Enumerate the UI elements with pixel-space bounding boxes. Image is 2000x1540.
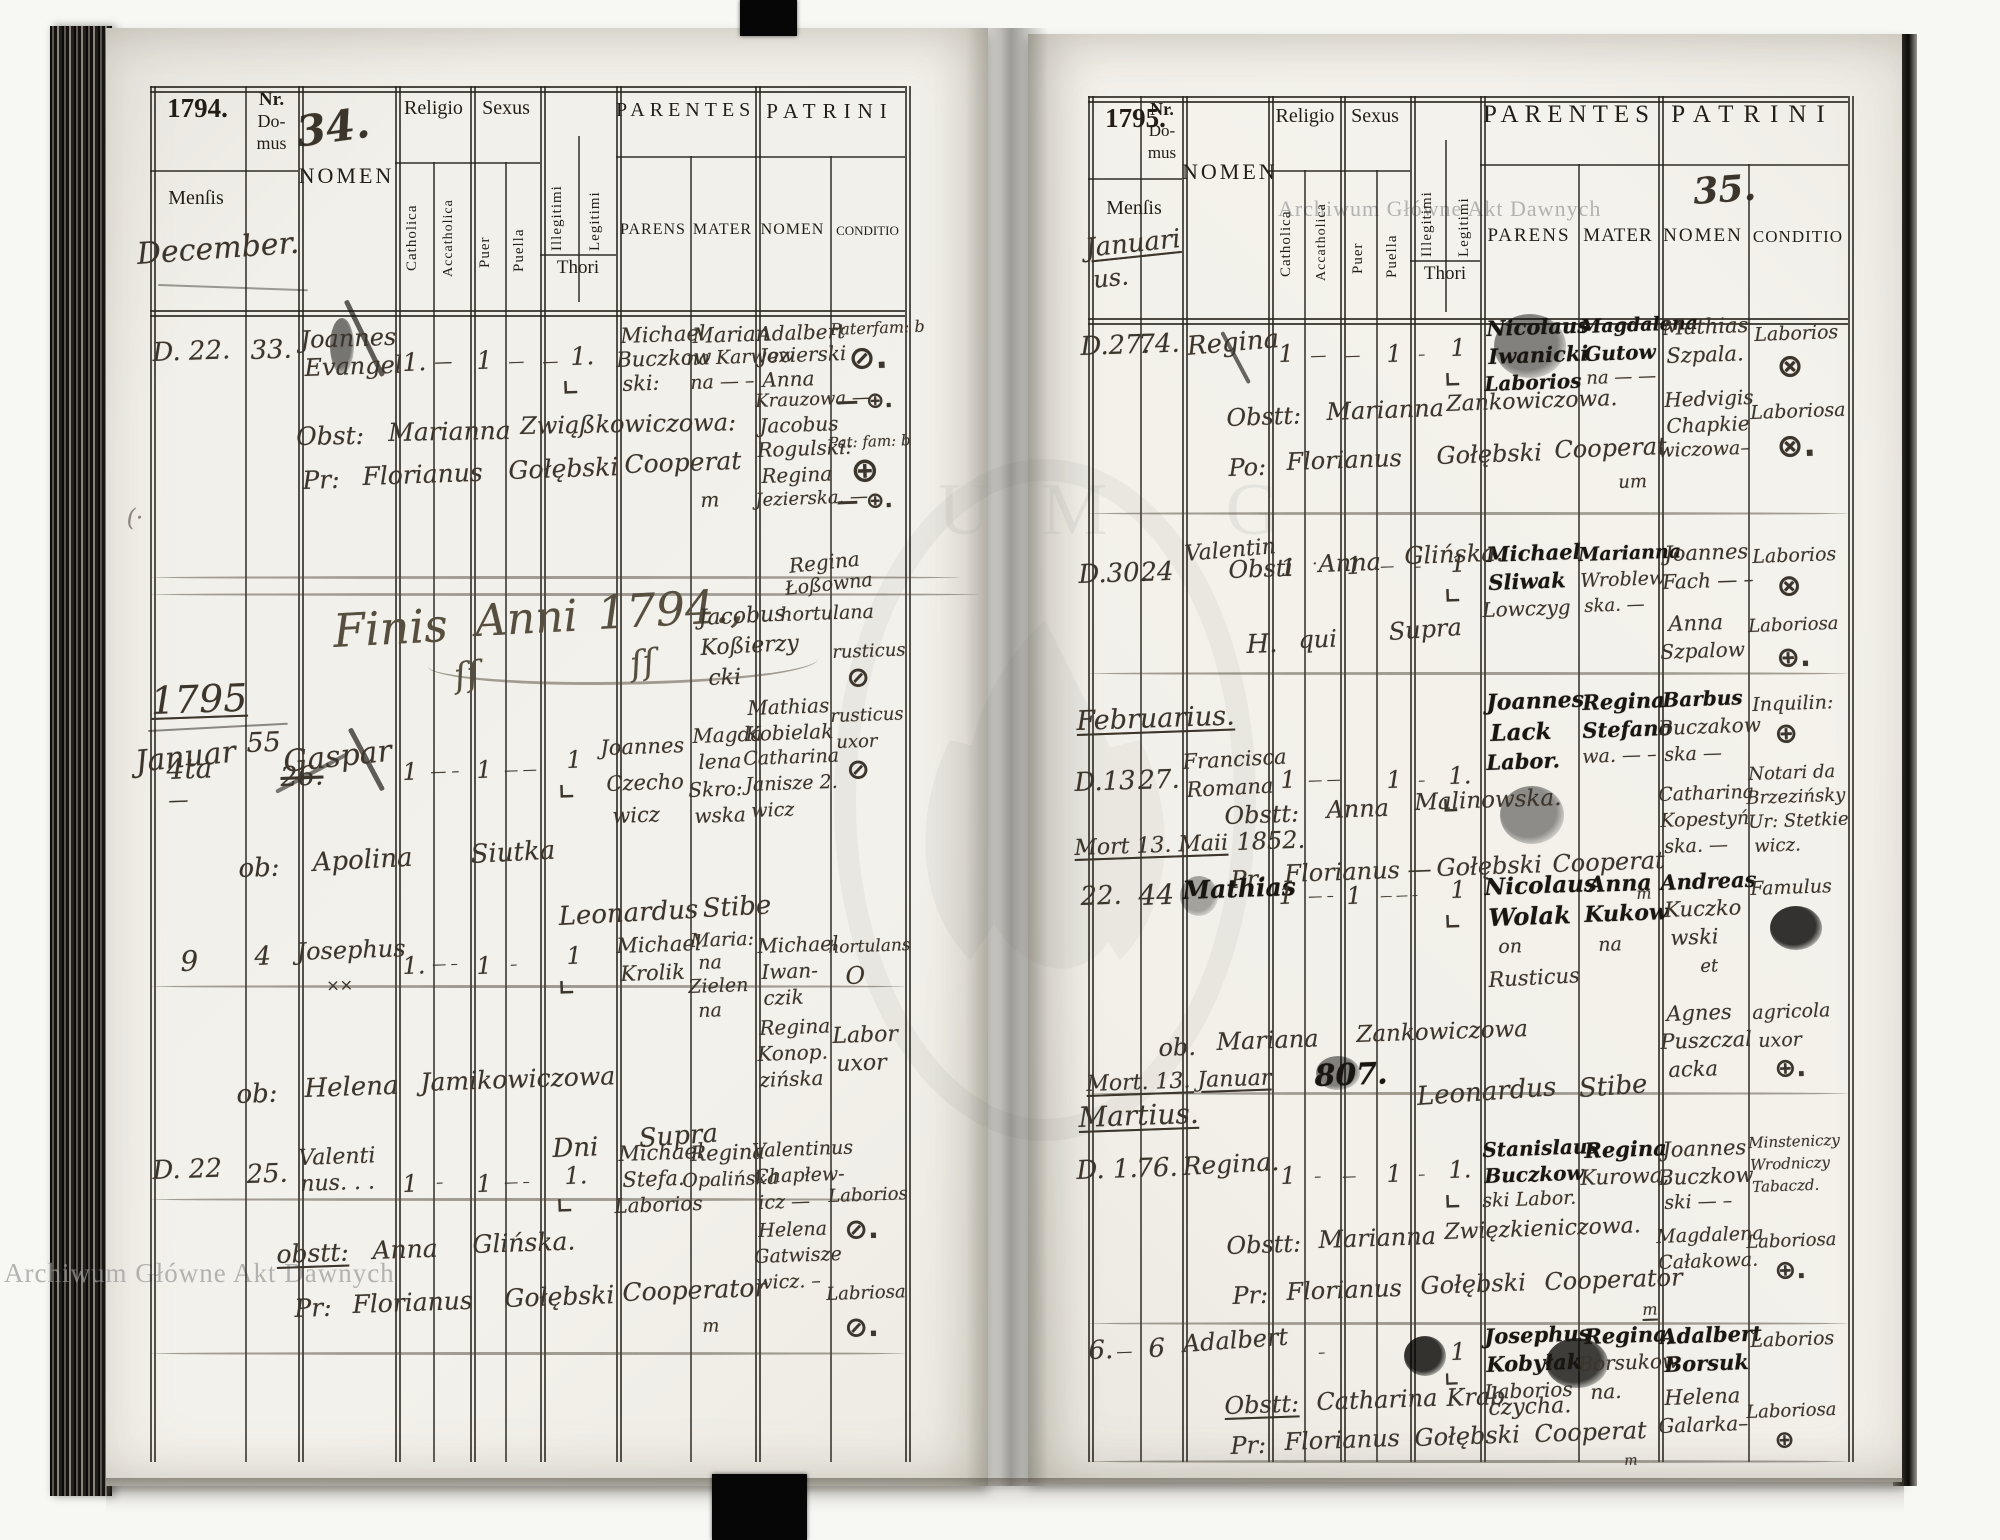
parentes-label-left: PARENTES bbox=[616, 100, 755, 121]
handwriting-text: 9 bbox=[180, 947, 199, 976]
handwriting-text: Valentinus bbox=[752, 1138, 853, 1161]
handwriting-text: ski: bbox=[622, 373, 660, 395]
handwriting-text: 1 bbox=[566, 943, 582, 968]
handwriting-text: Laboriosa bbox=[1750, 401, 1846, 423]
handwriting-text: – bbox=[1418, 774, 1425, 788]
handwriting-text: – bbox=[436, 1176, 443, 1190]
table-rule-vertical bbox=[1304, 170, 1306, 1462]
handwriting-text: Florianus bbox=[362, 460, 483, 489]
handwriting-text: Helena bbox=[1664, 1385, 1741, 1409]
handwriting-text: Adalbert bbox=[1660, 1322, 1762, 1347]
handwriting-text: Kukow bbox=[1584, 901, 1668, 926]
handwriting-text: Laboriosa bbox=[1746, 1231, 1837, 1252]
handwriting-text: rusticus bbox=[830, 705, 904, 726]
handwriting-text: Kobyłak bbox=[1486, 1351, 1582, 1375]
handwriting-text: Fach — – bbox=[1662, 569, 1754, 592]
handwriting-text: Andreas bbox=[1660, 869, 1757, 893]
ink-blot bbox=[1770, 906, 1822, 950]
handwriting-text: Zankowiczowa bbox=[1356, 1018, 1528, 1047]
handwriting-text: Supra bbox=[1388, 615, 1463, 644]
handwriting-text: — bbox=[434, 353, 453, 372]
handwriting-text: Wolak bbox=[1488, 903, 1571, 930]
handwriting-text: Stibe bbox=[702, 892, 772, 922]
handwriting-text: ⊕ bbox=[1774, 719, 1798, 748]
handwriting-text: Janisze 2. bbox=[745, 773, 838, 795]
handwriting-text: — bbox=[508, 353, 525, 370]
handwriting-text: uxor bbox=[836, 733, 878, 752]
handwriting-text: ob: bbox=[238, 855, 280, 882]
handwriting-text: 4 bbox=[254, 943, 271, 970]
handwriting-text: wiczowa– bbox=[1658, 439, 1750, 461]
handwriting-text: Puszczal bbox=[1660, 1029, 1752, 1053]
handwriting-text: Pr: bbox=[294, 1295, 332, 1321]
handwriting-text: na bbox=[1598, 935, 1622, 955]
handwriting-text: Tabaczd. bbox=[1752, 1178, 1819, 1195]
handwriting-text: ⊘. bbox=[844, 1313, 879, 1342]
handwriting-text: — bbox=[168, 789, 189, 810]
nr-domus-label-left-2: Do- bbox=[245, 112, 298, 131]
mater-label-right: MATER bbox=[1578, 226, 1658, 246]
handwriting-text: Iwan- bbox=[761, 960, 818, 982]
nr-domus-label-left-3: mus bbox=[245, 134, 298, 153]
table-rule-horizontal bbox=[150, 86, 905, 93]
handwriting-text: Pr: bbox=[302, 467, 340, 493]
handwriting-text: Catharina bbox=[1658, 783, 1754, 805]
handwriting-text: – bbox=[1418, 1168, 1425, 1182]
table-rule-vertical bbox=[1340, 96, 1346, 1462]
handwriting-text: Czecho bbox=[606, 771, 684, 795]
table-rule-vertical bbox=[245, 86, 247, 1462]
handwriting-text: · bbox=[1312, 556, 1318, 572]
handwriting-text: — bbox=[1310, 347, 1327, 364]
handwriting-text: Galarka– bbox=[1658, 1413, 1748, 1436]
handwriting-text: 27. bbox=[1138, 767, 1180, 794]
handwriting-text: D.30. bbox=[1078, 560, 1148, 588]
handwriting-text: ⊘. bbox=[848, 341, 888, 374]
patrini-label-right: PATRINI bbox=[1658, 102, 1848, 128]
handwriting-text: D. 22. bbox=[152, 337, 231, 366]
handwriting-text: Sliwak bbox=[1488, 569, 1566, 593]
handwriting-text: 1852. bbox=[1236, 828, 1306, 854]
handwriting-text: Gołębski bbox=[504, 1282, 615, 1311]
handwriting-text: Michael bbox=[757, 933, 839, 956]
handwriting-text: 1 bbox=[476, 347, 493, 373]
table-rule-vertical bbox=[1445, 140, 1447, 312]
handwriting-text: Siutka bbox=[470, 838, 556, 868]
handwriting-text: — bbox=[1116, 1343, 1133, 1360]
patrini-nomen-label-left: NOMEN bbox=[755, 222, 830, 239]
handwriting-text: Evangel bbox=[304, 353, 403, 380]
handwriting-text: Rusticus bbox=[1488, 965, 1580, 991]
handwriting-text: D. 1. bbox=[1076, 1156, 1138, 1184]
handwriting-text: Helena bbox=[758, 1220, 827, 1241]
handwriting-text: 74. bbox=[1138, 331, 1180, 358]
handwriting-text: Leonardus bbox=[558, 897, 699, 930]
handwriting-text: Anna bbox=[1668, 612, 1723, 635]
handwriting-text: agricola bbox=[1752, 1001, 1831, 1023]
handwriting-text: Joannes bbox=[1662, 1137, 1747, 1161]
handwriting-text: — – bbox=[504, 1175, 530, 1190]
handwriting-text: ſſ bbox=[628, 644, 658, 681]
handwriting-text: Stibe bbox=[1578, 1071, 1648, 1102]
handwriting-text: 1. bbox=[1448, 763, 1472, 788]
handwriting-text: — – bbox=[430, 763, 460, 780]
handwriting-text: 1 bbox=[1280, 767, 1296, 792]
handwriting-text: Borsuk bbox=[1664, 1351, 1749, 1375]
handwriting-text: 1 bbox=[1278, 341, 1294, 366]
handwriting-text: Kopestyń bbox=[1660, 809, 1749, 831]
handwriting-text: Labor. bbox=[1486, 749, 1560, 773]
handwriting-text: Laboriosa bbox=[1746, 1401, 1837, 1422]
handwriting-text: Joannes bbox=[300, 325, 397, 352]
handwriting-text: Florianus bbox=[1286, 446, 1402, 474]
handwriting-text: ob: bbox=[236, 1081, 278, 1108]
handwriting-text: 1 bbox=[1386, 341, 1402, 366]
handwriting-text: ⊗ bbox=[1776, 349, 1804, 382]
handwriting-text: Szpala. bbox=[1666, 343, 1744, 367]
handwriting-text: Kobielak bbox=[745, 721, 834, 744]
bookmark-ribbon-top bbox=[740, 0, 797, 36]
handwriting-text: 22. bbox=[1080, 883, 1122, 910]
handwriting-text: ⊕. bbox=[1776, 643, 1811, 672]
handwriting-text: 76. bbox=[1136, 1155, 1178, 1182]
handwriting-text: Februarius. bbox=[1076, 702, 1235, 735]
religio-label-right: Religio bbox=[1270, 106, 1340, 127]
handwriting-text: Wroblew bbox=[1580, 569, 1666, 591]
handwriting-text: Anna bbox=[762, 368, 815, 390]
handwriting-text: Stefa. bbox=[622, 1168, 685, 1191]
handwriting-text: m bbox=[1624, 1454, 1638, 1468]
handwriting-text: 24 bbox=[1140, 559, 1174, 586]
sexus-label-right: Sexus bbox=[1342, 106, 1408, 127]
handwriting-text: – bbox=[1418, 348, 1425, 362]
handwriting-text: Catharina bbox=[1316, 1386, 1438, 1414]
handwriting-text: D. 22 bbox=[152, 1156, 222, 1184]
handwriting-text: ob. bbox=[1158, 1035, 1196, 1060]
handwriting-text: Marianna bbox=[1326, 396, 1444, 424]
handwriting-text: 1. bbox=[402, 349, 427, 375]
table-rule-vertical bbox=[1848, 96, 1854, 1462]
handwriting-text: Szpalow bbox=[1660, 639, 1745, 662]
handwriting-text: ska. — bbox=[1664, 836, 1728, 857]
handwriting-text: us. bbox=[1092, 264, 1130, 292]
nomen-label-left: NOMEN bbox=[298, 164, 395, 187]
handwriting-text: Regina bbox=[759, 1016, 831, 1038]
handwriting-text: 807. bbox=[1314, 1059, 1388, 1092]
handwriting-text: Maria: bbox=[690, 930, 754, 951]
handwriting-text: — – bbox=[432, 957, 458, 972]
handwriting-text: Obstt: bbox=[1224, 801, 1300, 828]
handwriting-text: Jezierski bbox=[759, 343, 847, 366]
handwriting-text: Pr: bbox=[1232, 1283, 1269, 1308]
handwriting-text: 1 bbox=[1450, 335, 1466, 360]
nr-domus-label-right-2: Do- bbox=[1141, 122, 1183, 140]
handwriting-text: 4ta bbox=[166, 754, 213, 784]
handwriting-text: Inquilin: bbox=[1752, 693, 1834, 715]
handwriting-text: obstt: bbox=[276, 1239, 349, 1267]
legitimi-label-right: Legitimi bbox=[1456, 150, 1473, 304]
handwriting-text: Glińska. bbox=[472, 1228, 576, 1257]
handwriting-text: Regina bbox=[761, 464, 833, 486]
handwriting-text: uxor bbox=[836, 1052, 887, 1076]
handwriting-text: ⊕ bbox=[850, 453, 880, 488]
table-rule-vertical bbox=[905, 86, 911, 1462]
handwriting-text: ∟ bbox=[556, 1195, 573, 1216]
legitimi-label-left: Legitimi bbox=[587, 146, 604, 296]
handwriting-text: Obst: bbox=[296, 423, 364, 449]
handwriting-text: qui bbox=[1298, 627, 1337, 652]
handwriting-text: wski bbox=[1670, 926, 1719, 949]
handwriting-text: 1 bbox=[1280, 1163, 1296, 1188]
handwriting-text: 55 bbox=[246, 729, 281, 757]
handwriting-text: Iwanicki bbox=[1488, 343, 1589, 367]
handwriting-text: – bbox=[1418, 1346, 1425, 1360]
patrini-label-left: PATRINI bbox=[755, 100, 905, 122]
catholica-label-left: Catholica bbox=[404, 172, 421, 304]
year-label-left: 1794. bbox=[150, 94, 245, 122]
handwriting-text: 1 bbox=[566, 747, 582, 772]
handwriting-text: Obstt: bbox=[1224, 1391, 1300, 1418]
handwriting-text: 44 bbox=[1138, 881, 1175, 910]
handwriting-text: Wrodniczy bbox=[1750, 1155, 1830, 1173]
handwriting-text: Marianna bbox=[388, 418, 511, 445]
handwriting-text: nus. . . bbox=[300, 1171, 375, 1196]
handwriting-text: Anna bbox=[1318, 550, 1381, 576]
handwriting-text: 1 bbox=[1386, 1161, 1402, 1186]
handwriting-text: 1 bbox=[476, 1171, 492, 1196]
handwriting-text: Gołębski bbox=[1436, 440, 1542, 468]
handwriting-text: Joannes bbox=[1486, 689, 1584, 714]
handwriting-text: wicz bbox=[751, 800, 795, 820]
table-rule-horizontal bbox=[150, 1352, 905, 1355]
handwriting-text: ⊘ bbox=[846, 663, 870, 692]
handwriting-text: zińska bbox=[759, 1068, 824, 1090]
handwriting-text: Obstt: bbox=[1226, 1231, 1302, 1258]
handwriting-text: 1 bbox=[1450, 877, 1466, 902]
table-rule-horizontal bbox=[1410, 260, 1480, 262]
handwriting-text: ſſ bbox=[452, 656, 482, 693]
handwriting-text: Anna bbox=[1588, 872, 1652, 896]
handwriting-text: m bbox=[1642, 1301, 1658, 1318]
handwriting-text: ⊘. bbox=[844, 1215, 879, 1244]
handwriting-text: Laboriosa bbox=[1748, 615, 1839, 636]
handwriting-text: ski — – bbox=[1664, 1192, 1733, 1213]
handwriting-text: Buczkow bbox=[1658, 1165, 1754, 1189]
handwriting-text: Mathias bbox=[747, 695, 830, 718]
puer-label-left: Puer bbox=[477, 204, 494, 300]
handwriting-text: — bbox=[1380, 560, 1394, 574]
handwriting-text: Buczakow bbox=[1658, 714, 1761, 738]
handwriting-text: D.13. bbox=[1074, 768, 1144, 796]
handwriting-text: Regina bbox=[1186, 326, 1280, 360]
handwriting-text: Lowczyg bbox=[1482, 597, 1571, 620]
handwriting-text: ⊕. bbox=[1774, 1055, 1807, 1082]
handwriting-text: ∟ bbox=[558, 781, 575, 802]
handwriting-text: 1 bbox=[402, 759, 418, 784]
bookmark-ribbon-bottom bbox=[712, 1474, 807, 1540]
handwriting-text: wa. — – bbox=[1582, 745, 1657, 767]
handwriting-text: ∟ bbox=[562, 377, 579, 398]
handwriting-text: Florianus bbox=[1284, 1426, 1400, 1454]
handwriting-text: na — – bbox=[690, 372, 755, 393]
handwriting-text: — – bbox=[1308, 889, 1334, 904]
handwriting-text: Famulus bbox=[1750, 877, 1832, 899]
handwriting-text: Ur: Stetkie bbox=[1748, 810, 1849, 831]
handwriting-text: Joannes bbox=[600, 735, 685, 759]
handwriting-text: Po: bbox=[1228, 455, 1267, 480]
handwriting-text: Helena bbox=[304, 1073, 399, 1102]
handwriting-text: Chapłew- bbox=[754, 1165, 845, 1187]
handwriting-text: Cooperat bbox=[1554, 434, 1667, 462]
handwriting-text: wicz bbox=[612, 804, 660, 827]
table-rule-vertical bbox=[505, 162, 507, 1462]
table-rule-horizontal bbox=[1088, 96, 1848, 103]
religio-label-left: Religio bbox=[397, 98, 470, 119]
mensis-label-right: Menſis bbox=[1088, 198, 1180, 219]
handwriting-text: Valenti bbox=[298, 1145, 376, 1170]
handwriting-text: Joannes bbox=[1664, 541, 1749, 565]
handwriting-text: cki bbox=[708, 667, 741, 690]
handwriting-text: icz — bbox=[758, 1192, 810, 1213]
handwriting-text: Romana bbox=[1186, 775, 1274, 801]
handwriting-text: Dni bbox=[552, 1134, 599, 1162]
handwriting-text: ski Labor. bbox=[1482, 1189, 1577, 1211]
handwriting-text: Gatwisze bbox=[754, 1245, 842, 1267]
handwriting-text: Zielen bbox=[688, 976, 749, 997]
nr-domus-label-right-3: mus bbox=[1141, 144, 1183, 162]
handwriting-text: Regina bbox=[1582, 689, 1665, 713]
table-rule-horizontal bbox=[1088, 1460, 1848, 1463]
handwriting-text: 25. bbox=[246, 1161, 288, 1188]
handwriting-text: 1 bbox=[1386, 767, 1402, 792]
register-scan: UM G Archiwum Główne Akt Dawnych Archiwu… bbox=[0, 0, 2000, 1540]
handwriting-text: lena bbox=[698, 750, 742, 771]
conditio-label-right: CONDITIO bbox=[1748, 228, 1848, 246]
handwriting-text: hortulana bbox=[780, 603, 874, 625]
handwriting-text: acka bbox=[1668, 1058, 1718, 1081]
handwriting-text: na. bbox=[1590, 1381, 1622, 1402]
handwriting-text: Hedvigis bbox=[1664, 387, 1754, 410]
table-rule-vertical bbox=[578, 136, 580, 302]
handwriting-text: Agnes bbox=[1666, 1002, 1732, 1025]
handwriting-text: Florianus bbox=[1286, 1276, 1402, 1304]
accatholica-label-left: Accatholica bbox=[441, 168, 457, 308]
handwriting-text: H. bbox=[1246, 631, 1278, 658]
handwriting-text: Laborios bbox=[1754, 323, 1839, 345]
handwriting-text: Labriosa bbox=[826, 1283, 906, 1304]
handwriting-text: czik bbox=[763, 987, 804, 1008]
handwriting-text: 33. bbox=[250, 337, 292, 364]
illegitimi-label-right: Illegitimi bbox=[1419, 144, 1436, 304]
handwriting-text: Pat: fam: b bbox=[828, 433, 911, 451]
conditio-label-left: CONDITIO bbox=[830, 224, 905, 238]
handwriting-text: 1. bbox=[564, 1163, 588, 1188]
handwriting-text: m bbox=[702, 1317, 720, 1336]
handwriting-text: na — — bbox=[1586, 368, 1656, 388]
handwriting-text: O bbox=[845, 963, 866, 988]
handwriting-text: Jacobus bbox=[698, 603, 786, 630]
handwriting-text: ⊕ bbox=[1774, 1427, 1795, 1452]
handwriting-text: um bbox=[1618, 473, 1647, 492]
handwriting-text: Mathias bbox=[1662, 315, 1749, 339]
handwriting-text: 6. bbox=[1088, 1337, 1114, 1364]
handwriting-text: ska. — bbox=[1584, 596, 1645, 616]
handwriting-text: Catharina bbox=[743, 747, 839, 769]
handwriting-text: Francisca bbox=[1182, 747, 1287, 773]
handwriting-text: Malinowska. bbox=[1414, 787, 1562, 815]
handwriting-text: 1. bbox=[402, 953, 426, 978]
handwriting-text: na bbox=[698, 1001, 722, 1021]
catholica-label-right: Catholica bbox=[1278, 178, 1295, 310]
handwriting-text: Martius. bbox=[1078, 1100, 1199, 1132]
handwriting-text: ⊘ bbox=[846, 755, 870, 784]
table-rule-vertical bbox=[1410, 96, 1416, 1462]
handwriting-text: Florianus bbox=[352, 1288, 473, 1317]
handwriting-text: — bbox=[1342, 1170, 1356, 1184]
handwriting-text: na bbox=[698, 953, 722, 973]
handwriting-text: — bbox=[1344, 347, 1361, 364]
handwriting-text: ×× bbox=[326, 977, 353, 994]
handwriting-text: Gołębski bbox=[1414, 1422, 1520, 1450]
table-rule-horizontal bbox=[1088, 512, 1848, 515]
handwriting-text: Cooperat bbox=[624, 448, 742, 477]
handwriting-text: – bbox=[510, 958, 517, 972]
parens-label-right: PARENS bbox=[1480, 226, 1578, 246]
puella-label-left: Puella bbox=[511, 200, 528, 300]
handwriting-text: Zwiąßkowiczowa: bbox=[520, 410, 736, 438]
handwriting-text: et bbox=[1700, 957, 1719, 976]
table-rule-vertical bbox=[1480, 96, 1486, 1462]
illegitimi-label-left: Illegitimi bbox=[549, 140, 566, 296]
table-rule-horizontal bbox=[395, 162, 540, 164]
table-rule-horizontal bbox=[1088, 672, 1848, 675]
handwriting-text: Apolina bbox=[312, 845, 413, 876]
puella-label-right: Puella bbox=[1384, 206, 1401, 306]
handwriting-text: ⊕. bbox=[1774, 1257, 1807, 1284]
accatholica-label-right: Accatholica bbox=[1314, 172, 1330, 312]
handwriting-text: Cooperator bbox=[1544, 1265, 1683, 1294]
handwriting-text: Glińska. bbox=[1404, 541, 1504, 568]
handwriting-text: ∟ bbox=[1444, 369, 1461, 390]
handwriting-text: ska — bbox=[1664, 744, 1722, 765]
handwriting-text: Nicolaus bbox=[1486, 314, 1589, 339]
handwriting-text: Chapkie bbox=[1666, 413, 1750, 436]
nomen-label-right: NOMEN bbox=[1182, 160, 1268, 183]
handwriting-text: Cooperator bbox=[622, 1275, 767, 1305]
handwriting-text: 1. bbox=[570, 343, 595, 369]
table-rule-horizontal bbox=[150, 170, 298, 172]
handwriting-text: Jamikowiczowa bbox=[420, 1063, 616, 1095]
handwriting-text: Konop. bbox=[757, 1042, 828, 1064]
handwriting-text: Michael bbox=[616, 933, 702, 957]
handwriting-text: Gutow bbox=[1584, 342, 1656, 364]
handwriting-text: 6 bbox=[1148, 1335, 1165, 1362]
handwriting-text: Pr: bbox=[1230, 1433, 1267, 1458]
handwriting-text: 1 bbox=[476, 757, 492, 782]
parens-label-left: PARENS bbox=[616, 222, 690, 239]
puer-label-right: Puer bbox=[1350, 210, 1367, 306]
handwriting-text: Notari da bbox=[1748, 763, 1835, 784]
handwriting-text: Labor bbox=[832, 1024, 898, 1048]
handwriting-text: ∟ bbox=[1444, 585, 1461, 606]
handwriting-text: m bbox=[700, 489, 720, 510]
handwriting-text: Kurowa, bbox=[1580, 1165, 1669, 1189]
handwriting-text: Mariana bbox=[1216, 1026, 1319, 1054]
handwriting-text: Josephus bbox=[296, 936, 406, 964]
handwriting-text: wska bbox=[694, 804, 746, 826]
handwriting-text: Laborios bbox=[828, 1185, 908, 1206]
handwriting-text: 1 bbox=[1450, 1339, 1466, 1364]
